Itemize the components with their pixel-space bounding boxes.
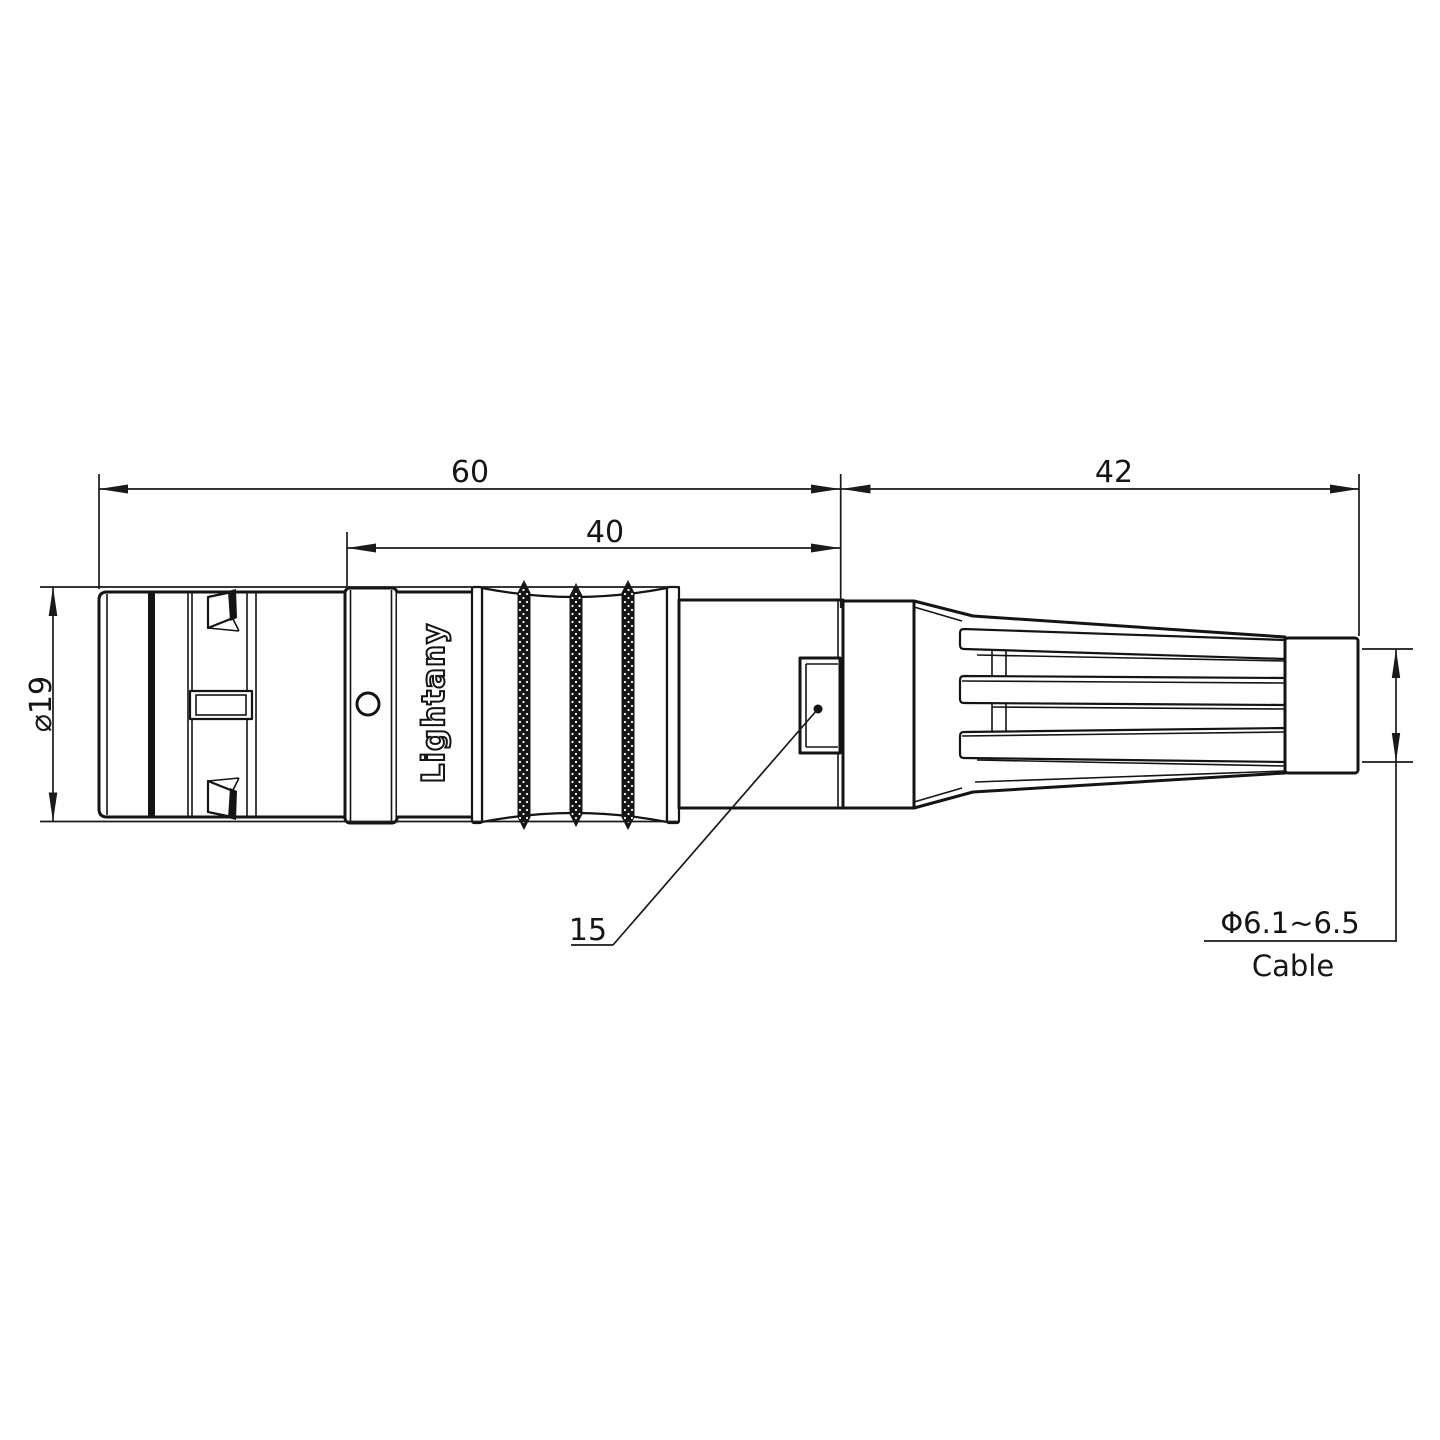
technical-drawing-page: Lightany (0, 0, 1440, 1440)
boot-collar (843, 601, 914, 808)
boot-rib-2 (960, 676, 1285, 705)
dim-length-42: 42 (1095, 455, 1133, 490)
dim-cable-range: Φ6.1~6.5 (1220, 906, 1359, 940)
latch-window (190, 691, 252, 719)
knurl-band-1 (518, 581, 530, 829)
collar-ring (345, 588, 397, 823)
brand-engraving-text: Lightany (416, 623, 452, 784)
connector-views: Lightany (99, 581, 1358, 829)
dim-diameter-19: ⌀19 (24, 676, 59, 732)
rear-body (679, 600, 843, 808)
cable-exit-sleeve (1285, 638, 1358, 773)
knurl-band-3 (622, 581, 634, 829)
front-dark-band (148, 592, 155, 817)
collar-hole (357, 693, 379, 715)
dim-length-40: 40 (586, 515, 624, 550)
knurled-grip (472, 581, 679, 829)
strain-relief-boot (843, 601, 1358, 808)
grip-collar-left (472, 587, 482, 823)
grip-collar-right (667, 587, 679, 823)
cable-clamp-window (800, 658, 840, 753)
connector-drawing: Lightany (0, 0, 1440, 1440)
cable-label: Cable (1252, 949, 1334, 983)
dim-ref-15: 15 (569, 913, 607, 948)
dim-length-60: 60 (451, 455, 489, 490)
knurl-band-2 (570, 584, 582, 826)
